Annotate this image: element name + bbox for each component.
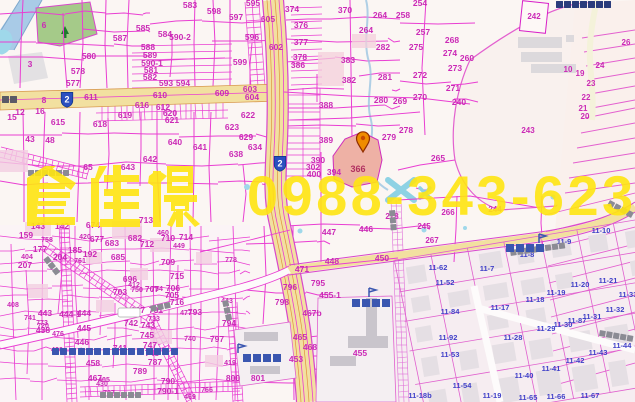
svg-text:382: 382	[342, 75, 356, 85]
svg-text:580: 580	[82, 51, 96, 61]
svg-text:602: 602	[269, 42, 283, 52]
svg-text:677: 677	[90, 234, 104, 244]
svg-text:388: 388	[319, 100, 333, 110]
svg-text:578: 578	[71, 66, 85, 76]
svg-text:778: 778	[225, 257, 237, 264]
svg-text:469: 469	[184, 394, 196, 401]
svg-text:611: 611	[84, 92, 98, 102]
svg-text:11-92: 11-92	[439, 333, 458, 342]
svg-text:610: 610	[153, 90, 167, 100]
svg-text:420: 420	[79, 234, 91, 241]
svg-text:446: 446	[75, 337, 89, 347]
svg-text:11-66: 11-66	[547, 392, 566, 401]
svg-text:582: 582	[143, 72, 157, 82]
svg-text:787: 787	[148, 357, 162, 367]
svg-text:797: 797	[210, 334, 224, 344]
svg-text:282: 282	[376, 42, 390, 52]
svg-text:11-7: 11-7	[480, 264, 495, 273]
svg-text:16: 16	[35, 106, 45, 116]
svg-text:185: 185	[68, 245, 82, 255]
svg-text:11-28: 11-28	[504, 333, 523, 342]
svg-text:605: 605	[261, 14, 275, 24]
svg-text:11-31: 11-31	[583, 312, 602, 321]
svg-text:703: 703	[113, 287, 127, 297]
svg-text:448: 448	[325, 256, 339, 266]
svg-text:11-21: 11-21	[599, 276, 618, 285]
svg-text:11-67: 11-67	[581, 391, 600, 400]
svg-text:712: 712	[140, 239, 154, 249]
svg-text:715: 715	[170, 271, 184, 281]
svg-text:467b: 467b	[302, 308, 321, 318]
svg-text:455: 455	[353, 348, 367, 358]
svg-text:740: 740	[184, 336, 196, 343]
svg-text:594: 594	[176, 78, 190, 88]
svg-text:386: 386	[291, 60, 305, 70]
svg-text:11-20: 11-20	[571, 280, 590, 289]
svg-text:11-19: 11-19	[547, 288, 566, 297]
svg-text:471: 471	[295, 264, 309, 274]
svg-text:376: 376	[294, 20, 308, 30]
svg-text:270: 270	[413, 92, 427, 102]
svg-text:619: 619	[118, 110, 132, 120]
svg-text:11-43: 11-43	[589, 348, 608, 357]
svg-text:11-62: 11-62	[429, 263, 448, 272]
svg-text:0988-343-623: 0988-343-623	[247, 164, 635, 227]
svg-text:465: 465	[293, 332, 307, 342]
svg-text:577: 577	[66, 78, 80, 88]
svg-text:260: 260	[460, 53, 474, 63]
svg-text:408: 408	[7, 302, 19, 309]
svg-text:15: 15	[7, 112, 17, 122]
svg-text:11-44: 11-44	[613, 341, 633, 350]
svg-text:240: 240	[452, 97, 466, 107]
svg-text:159: 159	[19, 230, 33, 240]
svg-text:599: 599	[233, 57, 247, 67]
svg-text:11-33: 11-33	[619, 290, 635, 299]
svg-text:19: 19	[576, 69, 585, 78]
svg-text:638: 638	[229, 149, 243, 159]
svg-text:405: 405	[98, 377, 110, 384]
svg-text:585: 585	[136, 23, 150, 33]
svg-text:389: 389	[319, 135, 333, 145]
svg-text:713: 713	[139, 215, 153, 225]
svg-text:370: 370	[338, 5, 352, 15]
svg-text:450: 450	[375, 253, 389, 263]
svg-text:383: 383	[341, 55, 355, 65]
svg-text:65: 65	[83, 162, 93, 172]
svg-text:741: 741	[24, 315, 36, 322]
svg-text:2: 2	[64, 95, 69, 105]
svg-text:11-84: 11-84	[441, 307, 461, 316]
svg-text:720: 720	[37, 323, 49, 330]
svg-text:796: 796	[283, 282, 297, 292]
svg-text:790-1: 790-1	[157, 386, 179, 396]
svg-text:640: 640	[168, 137, 182, 147]
svg-text:790: 790	[161, 376, 175, 386]
svg-text:11-41: 11-41	[542, 364, 561, 373]
svg-text:798: 798	[275, 297, 289, 307]
svg-text:622: 622	[241, 110, 255, 120]
svg-text:11-42: 11-42	[566, 356, 585, 365]
svg-text:8: 8	[42, 95, 47, 105]
svg-text:801: 801	[251, 373, 265, 383]
svg-text:274: 274	[443, 48, 457, 58]
svg-text:789: 789	[133, 366, 147, 376]
svg-text:11-18b: 11-18b	[408, 391, 432, 400]
svg-text:26: 26	[622, 38, 631, 47]
svg-text:629: 629	[239, 132, 253, 142]
svg-text:615: 615	[51, 117, 65, 127]
svg-text:742: 742	[124, 318, 138, 328]
svg-text:477: 477	[180, 310, 192, 317]
svg-text:258: 258	[396, 10, 410, 20]
svg-text:24: 24	[596, 61, 605, 70]
svg-text:598: 598	[207, 6, 221, 16]
svg-text:460: 460	[157, 230, 169, 237]
svg-text:269: 269	[393, 96, 407, 106]
svg-text:11-65: 11-65	[519, 393, 538, 402]
svg-text:242: 242	[527, 12, 541, 21]
svg-text:623: 623	[225, 122, 239, 132]
svg-text:11-54: 11-54	[453, 381, 473, 390]
svg-text:447: 447	[322, 227, 336, 237]
svg-text:254: 254	[413, 0, 427, 8]
svg-text:272: 272	[413, 70, 427, 80]
svg-text:11-10: 11-10	[592, 226, 611, 235]
svg-text:750: 750	[131, 287, 143, 294]
svg-text:280: 280	[374, 95, 388, 105]
svg-text:609: 609	[215, 88, 229, 98]
svg-text:618: 618	[93, 119, 107, 129]
svg-text:264: 264	[359, 25, 373, 35]
svg-text:593: 593	[159, 78, 173, 88]
svg-text:641: 641	[193, 142, 207, 152]
svg-text:685: 685	[111, 252, 125, 262]
svg-text:11-18: 11-18	[526, 295, 545, 304]
svg-text:590-2: 590-2	[169, 32, 191, 42]
svg-text:374: 374	[285, 4, 299, 14]
svg-text:267: 267	[425, 236, 439, 245]
svg-text:445: 445	[77, 323, 91, 333]
svg-text:377: 377	[294, 37, 308, 47]
svg-text:455-1: 455-1	[319, 290, 341, 300]
svg-text:795: 795	[311, 278, 325, 288]
svg-text:265: 265	[431, 153, 445, 163]
svg-text:643: 643	[121, 162, 135, 172]
svg-text:22: 22	[582, 93, 591, 102]
svg-text:468: 468	[303, 342, 317, 352]
svg-text:204: 204	[53, 252, 67, 262]
svg-text:3: 3	[28, 59, 33, 69]
svg-text:754: 754	[151, 286, 163, 293]
svg-text:443: 443	[38, 308, 52, 318]
svg-text:453: 453	[289, 354, 303, 364]
svg-text:11-52: 11-52	[436, 278, 455, 287]
svg-text:595: 595	[246, 0, 260, 8]
svg-text:271: 271	[446, 83, 460, 93]
svg-text:48: 48	[45, 135, 55, 145]
svg-text:268: 268	[445, 35, 459, 45]
svg-text:207: 207	[18, 260, 32, 270]
svg-text:264: 264	[373, 10, 387, 20]
svg-text:604: 604	[245, 92, 259, 102]
svg-text:404: 404	[21, 254, 33, 261]
svg-text:458: 458	[86, 358, 100, 368]
svg-text:6: 6	[42, 20, 47, 30]
svg-text:714: 714	[179, 232, 193, 242]
svg-text:11-32: 11-32	[606, 305, 625, 314]
svg-text:621: 621	[165, 115, 179, 125]
svg-text:11-29: 11-29	[537, 324, 556, 333]
svg-text:616: 616	[135, 100, 149, 110]
svg-text:23: 23	[587, 79, 596, 88]
svg-text:476: 476	[52, 331, 64, 338]
svg-text:583: 583	[183, 0, 197, 10]
svg-text:800: 800	[226, 373, 240, 383]
svg-text:177: 177	[33, 244, 47, 254]
svg-text:745: 745	[140, 330, 154, 340]
svg-text:11-19: 11-19	[483, 391, 502, 400]
svg-text:281: 281	[378, 72, 392, 82]
svg-text:11-40: 11-40	[515, 371, 534, 380]
svg-text:419: 419	[224, 360, 236, 367]
svg-text:634: 634	[248, 142, 262, 152]
svg-text:243: 243	[521, 126, 535, 135]
svg-text:20: 20	[581, 112, 590, 121]
svg-text:11-53: 11-53	[441, 350, 460, 359]
svg-text:761: 761	[74, 258, 86, 265]
svg-text:444: 444	[77, 308, 91, 318]
svg-text:709: 709	[161, 257, 175, 267]
svg-text:10: 10	[564, 65, 573, 74]
svg-text:43: 43	[25, 134, 35, 144]
svg-text:257: 257	[416, 27, 430, 37]
svg-text:716: 716	[170, 297, 184, 307]
svg-text:766: 766	[201, 387, 213, 394]
svg-text:597: 597	[229, 12, 243, 22]
svg-text:275: 275	[409, 42, 423, 52]
svg-text:278: 278	[399, 125, 413, 135]
svg-text:11-17: 11-17	[491, 303, 510, 312]
svg-text:273: 273	[448, 63, 462, 73]
svg-text:449: 449	[173, 243, 185, 250]
svg-text:642: 642	[143, 154, 157, 164]
svg-text:733: 733	[148, 316, 160, 323]
svg-text:279: 279	[382, 132, 396, 142]
svg-text:758: 758	[41, 237, 53, 244]
svg-text:587: 587	[113, 33, 127, 43]
svg-text:683: 683	[105, 238, 119, 248]
svg-text:596: 596	[245, 32, 259, 42]
